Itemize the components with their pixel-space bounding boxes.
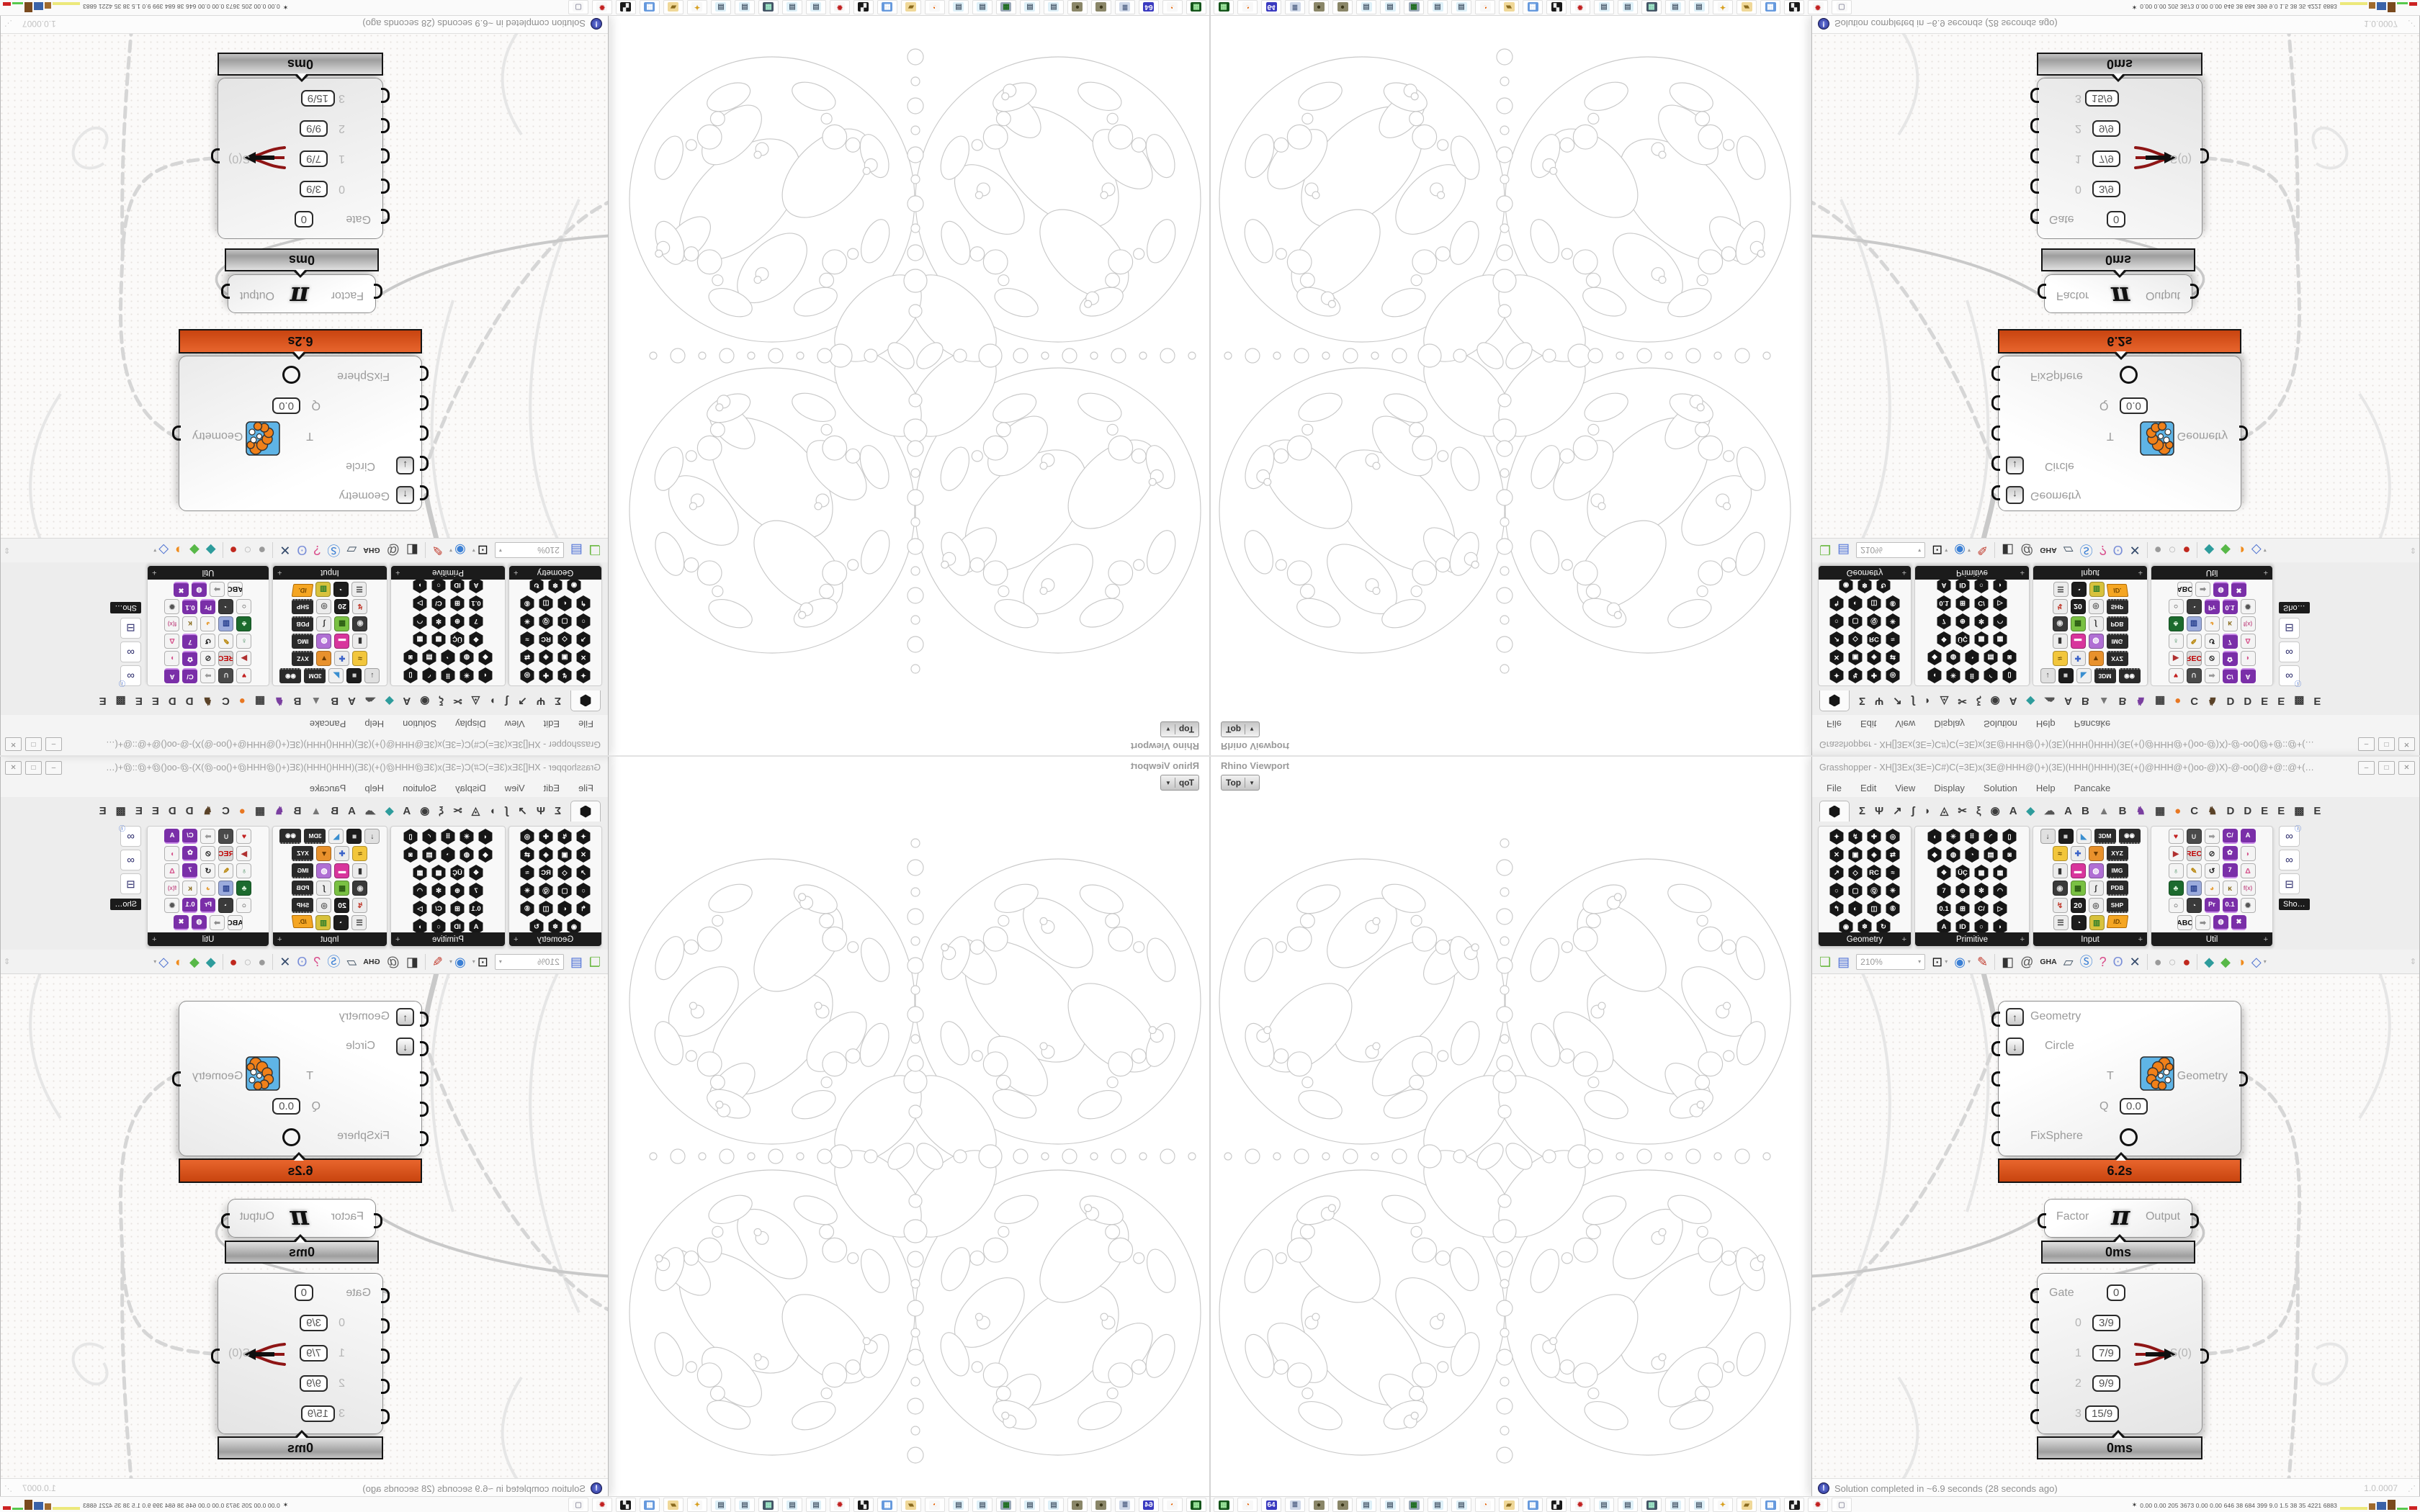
purple-icon[interactable]: ✖ [2231,915,2246,930]
gem-blue-icon[interactable]: ◇ [158,955,169,968]
input-icon[interactable]: ∪ [219,829,234,844]
preview-off-icon[interactable]: ● [258,544,266,557]
input-icon[interactable]: ◎ [2089,898,2104,913]
find-icon[interactable]: Ⓢ [2080,544,2093,557]
input-icon[interactable]: ♥ [237,668,252,683]
task-pc-blue-2[interactable]: ▦ [1760,1498,1780,1512]
menu-item-help[interactable]: Help [364,783,384,793]
task-notepad-6[interactable]: ▤ [1618,1498,1638,1512]
param-hex-icon[interactable]: ◖ [1927,829,1942,845]
exit-door-icon[interactable]: ◧ [406,544,418,557]
param-hex-icon[interactable]: ✦ [1829,829,1845,845]
param-hex-icon[interactable]: ✳ [519,613,535,629]
input-icon[interactable]: ▶ [237,846,252,861]
tab-display[interactable]: ◉ [1991,806,2000,816]
remote-panel-icon[interactable]: ∞ⓘ [2279,826,2300,847]
help-bag-icon[interactable]: ? [2099,955,2107,968]
menu-item-edit[interactable]: Edit [1860,719,1876,730]
tab-vector[interactable]: ↗ [518,696,527,706]
input-icon[interactable]: ↺ [201,863,216,878]
input-icon[interactable]: ○ [2169,599,2184,614]
param-hex-icon[interactable]: ◉ [1838,577,1854,593]
tab-plugin-mountain[interactable]: ▲ [2099,806,2110,816]
value-chip[interactable]: 0.0 [2120,1098,2148,1115]
input-icon[interactable]: ≈ [2053,651,2068,666]
input-icon[interactable]: ☰ [352,915,367,930]
panel-expand-icon[interactable]: + [395,935,400,944]
show-label-chip[interactable]: Sho… [2279,602,2310,613]
tab-surface[interactable]: ◗ [489,806,496,816]
param-hex-icon[interactable]: C/ [431,595,447,611]
close-button[interactable]: ✕ [2398,761,2415,775]
input-icon[interactable]: ◎ [2089,599,2104,614]
input-icon[interactable]: ◗ [2241,651,2256,666]
task-bw-app-1[interactable]: ▞ [1546,0,1567,14]
param-hex-icon[interactable]: ▤ [1983,649,1999,665]
param-hex-icon[interactable]: ✚ [538,829,554,845]
param-chip-icon[interactable]: 3DM [305,829,326,844]
task-scroll[interactable]: ≣ [1115,1498,1135,1512]
output-grip[interactable] [221,1213,230,1228]
param-hex-icon[interactable]: RC [538,865,554,881]
task-terminal-green[interactable]: ▦ [1214,1498,1234,1512]
task-notepad-8[interactable]: ▤ [1689,0,1709,14]
input-icon[interactable]: ▥ [219,616,234,631]
input-icon[interactable]: 20 [2071,898,2086,913]
purple-icon[interactable]: Pr [201,898,216,913]
gate-value-chip[interactable]: 0 [2107,1284,2125,1301]
param-hex-icon[interactable]: ↗ [575,865,591,881]
input-icon[interactable]: ♣ [2169,881,2184,896]
input-icon[interactable]: ✎ [219,863,234,878]
tab-plugin-e2[interactable]: E [135,696,143,706]
exit-door-icon[interactable]: ◧ [406,955,418,968]
input-icon[interactable]: ▬ [335,863,350,878]
param-hex-icon[interactable]: ⑥ [519,901,535,917]
preview-shaded-icon[interactable]: ● [230,955,238,968]
param-hex-icon[interactable]: ▯ [403,667,418,683]
purple-icon[interactable]: A [2241,668,2256,683]
hidden-wires-icon[interactable]: ✕ [2130,955,2141,968]
input-icon[interactable]: ☰ [352,582,367,597]
tab-vector[interactable]: ↗ [518,806,527,816]
menu-item-edit[interactable]: Edit [1860,783,1876,793]
preview-eye-icon[interactable]: ◉ [454,544,466,557]
tab-transform[interactable]: ξ [439,806,444,816]
param-hex-icon[interactable]: ○ [575,613,591,629]
param-chip-icon[interactable]: SHP [292,599,314,614]
task-notepad-3[interactable]: ▤ [972,0,992,14]
param-hex-icon[interactable]: ◎ [1885,829,1901,845]
param-hex-icon[interactable]: ◙ [2002,847,2017,863]
param-hex-icon[interactable]: ◇ [557,865,573,881]
param-hex-icon[interactable]: ◈ [538,847,554,863]
task-firefox-2[interactable]: ◔ [1475,0,1495,14]
tab-transform[interactable]: ξ [1976,806,1981,816]
input-icon[interactable]: 20 [2071,599,2086,614]
input-grip-q[interactable] [1991,395,2000,410]
rhino-viewport-tab-top[interactable]: Top ▼ [1160,775,1199,791]
menu-item-help[interactable]: Help [2036,719,2056,730]
input-icon[interactable]: ◗ [165,846,180,861]
sketch-pen-icon[interactable]: ✎ [1977,544,1988,557]
task-sparkle[interactable]: ✦ [1713,1498,1733,1512]
param-chip-icon[interactable]: IMG [292,634,314,649]
toolbar-grip-icon[interactable]: ⇕ [2410,957,2416,966]
task-bw-app-1[interactable]: ▞ [853,0,874,14]
param-chip-icon[interactable]: PDB [2107,881,2128,896]
task-sparkle[interactable]: ✦ [687,1498,707,1512]
gem-green-icon[interactable]: ◆ [189,544,200,557]
param-hex-icon[interactable]: ↗ [575,631,591,647]
task-white-box[interactable]: ▢ [1832,0,1852,14]
obscure-at-icon[interactable]: @ [387,955,400,968]
task-notepad-5[interactable]: ▤ [806,1498,826,1512]
param-hex-icon[interactable]: ◆ [478,649,493,665]
task-pc-dark[interactable]: ▦ [758,1498,779,1512]
param-hex-icon[interactable]: RC [538,631,554,647]
param-hex-icon[interactable]: C/ [431,901,447,917]
task-ball-1[interactable]: ● [1091,0,1111,14]
input-icon[interactable]: ◍ [2089,634,2104,649]
grasshopper-canvas[interactable]: ↑Geometry↓CircleTQ0.0FixSphereGeometry 6… [1812,974,2419,1478]
input-icon[interactable]: ∪ [2187,829,2202,844]
exit-door-icon[interactable]: ◧ [2002,955,2014,968]
tab-plugin-d1[interactable]: D [2226,696,2234,706]
purple-icon[interactable]: C/ [183,668,198,683]
menu-item-solution[interactable]: Solution [403,719,436,730]
param-hex-icon[interactable]: ◜ [421,667,437,683]
param-hex-icon[interactable]: ◆ [478,847,493,863]
param-hex-icon[interactable]: ▦ [1992,865,2008,881]
gate-value-chip[interactable]: 0 [2107,211,2125,228]
resize-grip-icon[interactable]: ⋰ [4,19,12,29]
purple-icon[interactable]: C/ [2223,668,2238,683]
task-notepad-2[interactable]: ▤ [1020,0,1040,14]
input-icon[interactable]: f(x) [165,616,180,631]
stream-input-grip-2[interactable] [2030,118,2039,133]
param-hex-icon[interactable]: ▢ [1847,883,1863,899]
param-hex-icon[interactable]: ◍ [1945,847,1961,863]
panel-expand-icon[interactable]: + [1902,569,1906,577]
input-icon[interactable]: ✹ [2241,898,2256,913]
tab-plugin-c[interactable]: C [2190,696,2198,706]
input-icon[interactable]: ↯ [2053,599,2068,614]
preview-wireframe-icon[interactable]: ○ [2169,544,2177,557]
tab-plugin-gem[interactable]: ◆ [385,696,394,706]
input-icon[interactable]: ◎ [317,898,332,913]
input-icon[interactable]: ✚ [2071,846,2086,861]
down-arrow-button[interactable]: ↓ [396,1038,414,1056]
input-icon[interactable]: ∪ [219,668,234,683]
purple-icon[interactable]: C/ [2223,829,2238,844]
task-gear-red-1[interactable]: ✹ [1570,0,1590,14]
param-hex-icon[interactable]: ◫ [1866,901,1882,917]
param-hex-icon[interactable]: ▩ [431,865,447,881]
purple-icon[interactable]: Pr [2205,599,2220,614]
help-bag-icon[interactable]: ? [313,955,321,968]
param-hex-icon[interactable]: ⊕ [449,613,465,629]
param-hex-icon[interactable]: A [1936,577,1952,593]
tab-plugin-brush[interactable]: ♞ [274,806,284,816]
input-icon[interactable]: ◕ [2205,881,2220,896]
param-hex-icon[interactable]: ○ [431,577,447,593]
menu-item-edit[interactable]: Edit [544,719,560,730]
save-file-icon[interactable]: ▤ [1837,544,1850,557]
task-notepad-7[interactable]: ▤ [1665,0,1685,14]
input-icon[interactable]: ◣ [2076,829,2092,844]
input-icon[interactable]: ➡ [210,582,225,597]
param-hex-icon[interactable]: ◜ [1983,667,1999,683]
input-icon[interactable]: ▶ [237,651,252,666]
param-chip-icon[interactable]: ◉◉ [280,829,302,844]
fixsphere-cluster-component[interactable]: ↑Geometry↓CircleTQ0.0FixSphereGeometry [1998,356,2241,511]
resize-grip-icon[interactable]: ⋰ [4,1484,12,1493]
grasshopper-title-bar[interactable]: Grasshopper - XH[]3Ex(3E=)C#)C(=3E)x(3E@… [1812,757,2419,779]
window-icon[interactable]: ▱ [346,955,357,968]
menu-item-solution[interactable]: Solution [1984,719,2017,730]
input-icon[interactable]: κ [2223,881,2238,896]
stream-value-chip[interactable]: 3/9 [300,1315,328,1331]
tab-plugin-e2[interactable]: E [135,806,143,816]
up-arrow-button[interactable]: ↑ [2006,1008,2024,1026]
tab-plugin-b2[interactable]: B [294,696,302,706]
param-hex-icon[interactable]: ◠ [412,883,428,899]
tab-plugin-grid[interactable]: ▦ [255,696,265,706]
gem-teal-icon[interactable]: ◆ [206,544,216,557]
task-bw-app-1[interactable]: ▞ [1546,1498,1567,1512]
resize-grip-icon[interactable]: ⋰ [2408,1484,2416,1493]
grasshopper-title-bar[interactable]: Grasshopper - XH[]3Ex(3E=)C#)C(=3E)x(3E@… [1812,733,2419,755]
tab-intersect[interactable]: ✂ [453,696,462,706]
stream-input-grip-2[interactable] [2030,1379,2039,1394]
input-icon[interactable]: ♥ [2169,829,2184,844]
save-file-icon[interactable]: ▤ [570,544,583,557]
task-folder-2[interactable]: ▰ [663,0,684,14]
menu-item-solution[interactable]: Solution [403,783,436,793]
param-hex-icon[interactable]: Ⓠ [1866,613,1882,629]
param-hex-icon[interactable]: ⇄ [519,649,535,665]
tab-plugin-b1[interactable]: B [331,806,339,816]
task-notepad-1[interactable]: ▤ [1044,1498,1064,1512]
stream-value-chip[interactable]: 3/9 [300,181,328,197]
param-hex-icon[interactable]: ◉ [566,577,582,593]
grasshopper-canvas[interactable]: ↑Geometry↓CircleTQ0.0FixSphereGeometry 6… [1812,34,2419,538]
param-hex-icon[interactable]: ÜÇ [1955,865,1971,881]
tab-plugin-a1[interactable]: A [2009,806,2017,816]
tab-plugin-a1[interactable]: A [403,696,411,706]
tab-plugin-mountain[interactable]: ▲ [310,696,321,706]
tab-plugin-gem[interactable]: ◆ [2027,806,2035,816]
stream-value-chip[interactable]: 15/9 [2085,1405,2119,1422]
input-icon[interactable]: ↯ [2053,898,2068,913]
input-icon[interactable]: ⊘ [201,651,216,666]
menu-item-display[interactable]: Display [1934,783,1965,793]
task-terminal-green[interactable]: ▦ [1186,0,1206,14]
menu-item-file[interactable]: File [1827,719,1842,730]
param-hex-icon[interactable]: 7 [468,883,484,899]
task-white-box[interactable]: ▢ [1832,1498,1852,1512]
param-hex-icon[interactable]: ≈ [519,631,535,647]
input-icon[interactable]: ▦ [2071,881,2086,896]
task-notepad-7[interactable]: ▤ [735,0,755,14]
tab-sets[interactable]: Ψ [1875,806,1883,816]
input-icon[interactable]: ∫ [317,881,332,896]
param-hex-icon[interactable]: ✻ [431,883,447,899]
open-file-icon[interactable]: ❏ [1819,544,1831,557]
task-ball-1[interactable]: ● [1091,1498,1111,1512]
menu-item-display[interactable]: Display [455,783,486,793]
param-hex-icon[interactable]: ❄ [547,577,563,593]
param-hex-icon[interactable]: ⇄ [1885,847,1901,863]
slideshow-icon[interactable]: ⊟ [2279,618,2300,639]
menu-item-view[interactable]: View [505,719,525,730]
input-icon[interactable]: ◎ [317,599,332,614]
task-gear-red-2[interactable]: ✹ [1808,0,1828,14]
input-icon[interactable]: ↺ [2205,634,2220,649]
param-hex-icon[interactable]: ⑥ [1885,595,1901,611]
input-icon[interactable]: ↓ [2040,668,2056,683]
preview-off-icon[interactable]: ● [2154,544,2162,557]
tab-plugin-b2[interactable]: B [294,806,302,816]
param-hex-icon[interactable]: ▤ [421,847,437,863]
input-icon[interactable]: ➡ [2205,829,2220,844]
grasshopper-title-bar[interactable]: Grasshopper - XH[]3Ex(3E=)C#)C(=3E)x(3E@… [1,733,608,755]
panel-expand-icon[interactable]: + [514,935,518,944]
stream-value-chip[interactable]: 9/9 [2092,1375,2120,1392]
hidden-wires-icon[interactable]: ✕ [2130,544,2141,557]
grasshopper-title-bar[interactable]: Grasshopper - XH[]3Ex(3E=)C#)C(=3E)x(3E@… [1,757,608,779]
param-hex-icon[interactable]: ID [1955,577,1971,593]
input-icon[interactable]: ◍ [317,863,332,878]
input-icon[interactable]: ☰ [2053,915,2069,930]
tab-sets[interactable]: Ψ [537,806,545,816]
menu-item-pancake[interactable]: Pancake [310,719,346,730]
tab-display[interactable]: ◉ [420,696,429,706]
tab-plugin-dots[interactable]: ▩ [116,806,126,816]
gem-orange-icon[interactable]: ◑ [2237,955,2245,968]
input-icon[interactable]: ◉ [353,881,368,896]
stream-gate-component[interactable]: Gate003/917/929/9315/9S(0) [218,78,383,239]
tab-mesh[interactable]: ◬ [472,696,480,706]
param-hex-icon[interactable]: ✳ [519,883,535,899]
tab-plugin-a2[interactable]: A [348,806,356,816]
task-gear-red-1[interactable]: ✹ [830,0,850,14]
task-notepad-8[interactable]: ▤ [711,1498,731,1512]
purple-icon[interactable]: ✿ [183,651,198,666]
param-hex-icon[interactable]: ▩ [1973,865,1989,881]
purple-icon[interactable]: ◍ [2213,915,2228,930]
panel-expand-icon[interactable]: + [2138,935,2143,944]
input-icon[interactable]: ◣ [329,668,344,683]
task-notepad-3[interactable]: ▤ [1428,1498,1448,1512]
menu-item-file[interactable]: File [1827,783,1842,793]
task-notepad-1[interactable]: ▤ [1044,0,1064,14]
task-firefox-2[interactable]: ◔ [925,1498,945,1512]
task-notepad-2[interactable]: ▤ [1020,1498,1040,1512]
param-hex-icon[interactable]: ◫ [1866,595,1882,611]
input-icon[interactable]: ➡ [2195,582,2210,597]
tab-plugin-d2[interactable]: D [2244,806,2251,816]
tab-surface[interactable]: ◗ [489,696,496,706]
task-notepad-4[interactable]: ▤ [1451,0,1471,14]
find-icon[interactable]: Ⓢ [327,955,340,968]
input-icon[interactable]: REC [219,846,234,861]
task-ball-1[interactable]: ● [1309,1498,1329,1512]
id-tag-icon[interactable]: ID. [2106,915,2128,928]
input-icon[interactable]: ▮ [2053,634,2068,649]
param-hex-icon[interactable]: ⊞ [449,901,465,917]
remote-panel-icon[interactable]: ∞ⓘ [120,826,141,847]
task-gear-red-1[interactable]: ✹ [1570,1498,1590,1512]
param-hex-icon[interactable]: ◍ [459,649,475,665]
param-hex-icon[interactable]: ✚ [1866,667,1882,683]
param-hex-icon[interactable]: ❖ [468,631,484,647]
input-icon[interactable]: ⊘ [2205,651,2220,666]
panel-expand-icon[interactable]: + [395,569,400,577]
task-bw-app-2[interactable]: ▞ [616,0,636,14]
preview-shaded-icon[interactable]: ● [2182,544,2190,557]
task-gear-red-1[interactable]: ✹ [830,1498,850,1512]
tab-mesh[interactable]: ◬ [1940,696,1949,706]
param-hex-icon[interactable]: ▷ [412,901,428,917]
param-hex-icon[interactable]: ◙ [2002,649,2017,665]
tab-intersect[interactable]: ✂ [1958,696,1967,706]
param-hex-icon[interactable]: 7 [1936,613,1952,629]
input-grip-fixsphere[interactable] [1991,1131,2000,1146]
param-chip-icon[interactable]: IMG [2107,634,2128,649]
input-icon[interactable]: ◉ [2053,616,2068,631]
panel-expand-icon[interactable]: + [152,935,156,944]
input-icon[interactable]: ♥ [2169,668,2184,683]
purple-icon[interactable]: 7 [2223,863,2238,878]
input-icon[interactable]: ▮ [2053,863,2068,878]
purple-icon[interactable]: 7 [183,634,198,649]
input-icon[interactable]: Δ [2241,863,2256,878]
input-icon[interactable]: ♣ [2169,616,2184,631]
task-ball-2[interactable]: ● [1067,0,1088,14]
slideshow-icon[interactable]: ⊟ [120,618,141,639]
remote-goggles-icon[interactable]: ∞ [120,850,141,870]
input-icon[interactable]: ▬ [2071,863,2086,878]
input-icon[interactable]: ■ [347,668,362,683]
param-hex-icon[interactable]: ◠ [1992,613,2008,629]
menu-item-file[interactable]: File [578,719,593,730]
menu-item-view[interactable]: View [1895,719,1915,730]
gem-orange-icon[interactable]: ◑ [2237,544,2245,557]
task-notepad-2[interactable]: ▤ [1380,1498,1400,1512]
canvas-zoom-select[interactable]: 210%▾ [495,954,564,970]
stream-value-chip[interactable]: 7/9 [300,1345,328,1362]
param-hex-icon[interactable]: ⠿ [440,829,456,845]
zoom-extents-icon[interactable]: ⊡ [1932,544,1942,557]
param-hex-icon[interactable]: ◙ [403,847,418,863]
task-notepad-5[interactable]: ▤ [1594,1498,1614,1512]
input-icon[interactable]: ▦ [335,881,350,896]
input-icon[interactable]: ◔ [219,599,234,614]
input-icon[interactable]: ABC [228,915,243,930]
gem-orange-icon[interactable]: ◑ [175,955,183,968]
canvas-zoom-select[interactable]: 210%▾ [495,543,564,559]
gha-assembly-icon[interactable]: GHA [363,546,380,555]
purple-icon[interactable]: ✿ [2223,651,2238,666]
gha-assembly-icon[interactable]: GHA [363,958,380,966]
param-hex-icon[interactable]: ⊞ [449,595,465,611]
preview-wireframe-icon[interactable]: ○ [244,544,252,557]
input-icon[interactable]: ◗ [2241,846,2256,861]
input-icon[interactable]: ▥ [219,881,234,896]
input-icon[interactable]: ≈ [2053,846,2068,861]
